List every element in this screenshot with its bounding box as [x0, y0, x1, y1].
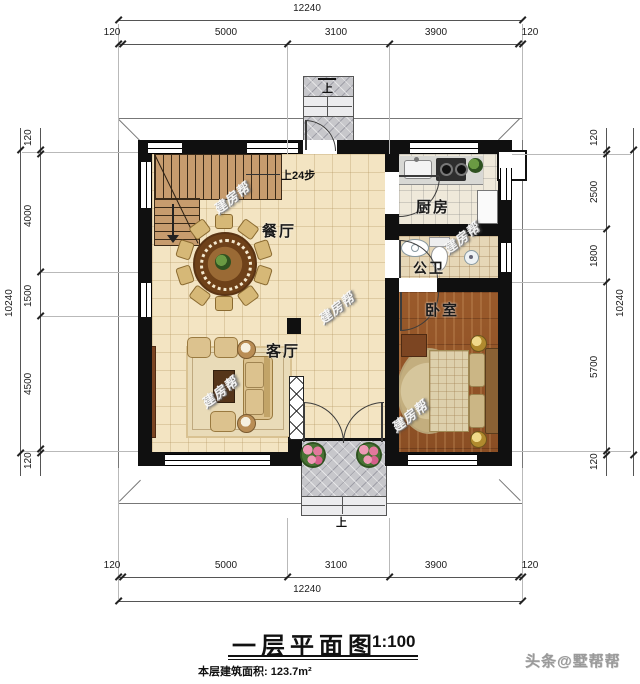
extension-line [389, 518, 390, 575]
dim-right-seg: 120 [589, 116, 600, 160]
dimension-line [606, 128, 607, 476]
side-table [237, 340, 256, 359]
title-underline [228, 659, 418, 660]
stove-burner-icon [440, 163, 453, 176]
stair-note-leader [246, 174, 280, 175]
step-line [301, 505, 385, 506]
armchair [214, 337, 238, 358]
dim-right-total: 10240 [615, 270, 626, 336]
window [410, 142, 478, 154]
dimension-line [118, 577, 522, 578]
dim-left-seg: 120 [23, 116, 34, 160]
dim-bottom-seg: 3900 [411, 560, 461, 571]
bed-mattress [429, 350, 469, 432]
extension-line [512, 451, 631, 452]
dim-left-seg: 4500 [23, 359, 34, 409]
dim-tick [518, 597, 525, 604]
stair-arrow-icon [167, 235, 179, 243]
extension-line [42, 316, 138, 317]
extension-line [512, 282, 604, 283]
dim-right-seg: 120 [589, 440, 600, 484]
bed-pillow [469, 394, 485, 428]
dim-left-seg: 4000 [23, 191, 34, 241]
flower-pot [356, 442, 382, 468]
wall-interior-vertical [385, 278, 399, 466]
dimension-line [118, 601, 522, 602]
window [408, 454, 477, 466]
sofa-cushion [245, 362, 264, 388]
dimension-line [40, 128, 41, 476]
wall-interior-vertical [385, 154, 399, 172]
faucet-icon [414, 157, 419, 162]
up-label-top: 上 [322, 80, 333, 96]
wall-interior-vertical [385, 214, 399, 240]
window [500, 243, 512, 272]
dim-right-seg: 5700 [589, 342, 600, 392]
dining-chair [215, 296, 233, 311]
door-leaf [400, 292, 402, 330]
step-divider [327, 96, 328, 116]
room-label-dining: 餐厅 [262, 220, 296, 241]
dim-top-seg: 5000 [201, 27, 251, 38]
column [287, 318, 301, 334]
dimension-line [118, 44, 522, 45]
floor-area-label: 本层建筑面积: 123.7m² [198, 663, 312, 679]
bed-post [470, 431, 487, 448]
armchair [187, 337, 211, 358]
step-divider [342, 496, 343, 514]
dimension-line [633, 128, 634, 476]
door-leaf [305, 120, 307, 150]
dim-tick [518, 16, 525, 23]
window [247, 142, 298, 154]
plan-scale: 1:100 [372, 632, 415, 652]
toutiao-watermark: 头条@墅帮帮 [525, 650, 621, 671]
table-plant [215, 254, 231, 270]
window [148, 142, 182, 154]
floor-plan-canvas: 餐厅 厨房 公卫 卧室 客厅 上24步 上 上 建房帮 建房帮 建房帮 建房帮 … [0, 0, 640, 684]
stove-burner-icon [455, 163, 468, 176]
door-leaf [381, 402, 383, 442]
up-label-bottom: 上 [336, 514, 347, 530]
entry-steps [301, 496, 387, 516]
dim-bottom-seg: 120 [87, 560, 137, 571]
extension-line [42, 272, 138, 273]
extension-line [389, 46, 390, 154]
extension-line [287, 46, 288, 154]
bed-pillow [469, 353, 485, 387]
window [140, 283, 152, 317]
side-table [237, 414, 256, 433]
fridge [477, 190, 498, 224]
extension-line [512, 154, 631, 155]
bed-post [470, 335, 487, 352]
dim-bottom-seg: 120 [505, 560, 555, 571]
door-leaf [399, 175, 439, 177]
sofa-back [264, 357, 270, 417]
dim-top-total: 12240 [277, 3, 337, 14]
window [140, 162, 152, 208]
window [500, 168, 512, 200]
door-leaf [399, 240, 401, 278]
shower-head-dot [469, 255, 473, 259]
dim-top-seg: 120 [87, 27, 137, 38]
kitchen-plant [468, 158, 483, 173]
decorative-screen [289, 376, 304, 440]
door-leaf [303, 402, 305, 442]
dim-bottom-total: 12240 [277, 584, 337, 595]
extension-line [512, 229, 604, 230]
dim-bottom-seg: 5000 [201, 560, 251, 571]
dim-top-seg: 3900 [411, 27, 461, 38]
wall-bath-bedroom [437, 278, 512, 292]
armchair [210, 411, 236, 432]
extension-line [522, 468, 523, 599]
room-label-bath: 公卫 [413, 258, 445, 278]
dining-chair [215, 214, 233, 229]
up-tick-top [318, 78, 336, 80]
dimension-line [20, 128, 21, 476]
dim-right-seg: 2500 [589, 167, 600, 217]
dimension-line [118, 20, 522, 21]
dim-top-seg: 120 [505, 27, 555, 38]
top-porch-steps [303, 96, 354, 118]
dim-left-total: 10240 [4, 270, 15, 336]
title-underline [228, 655, 418, 657]
room-label-kitchen: 厨房 [416, 196, 450, 217]
dim-bottom-seg: 3100 [311, 560, 361, 571]
flower-pot [300, 442, 326, 468]
room-label-living: 客厅 [266, 340, 300, 361]
dim-left-seg: 120 [23, 439, 34, 483]
window [165, 454, 270, 466]
dim-left-seg: 1500 [23, 271, 34, 321]
room-label-bedroom: 卧室 [425, 299, 459, 320]
dim-top-seg: 3100 [311, 27, 361, 38]
dim-right-seg: 1800 [589, 231, 600, 281]
sofa-cushion [245, 389, 264, 415]
bedroom-dresser [401, 334, 427, 357]
stair-note: 上24步 [281, 167, 315, 183]
extension-line [287, 518, 288, 575]
stair-direction-line [172, 204, 174, 236]
